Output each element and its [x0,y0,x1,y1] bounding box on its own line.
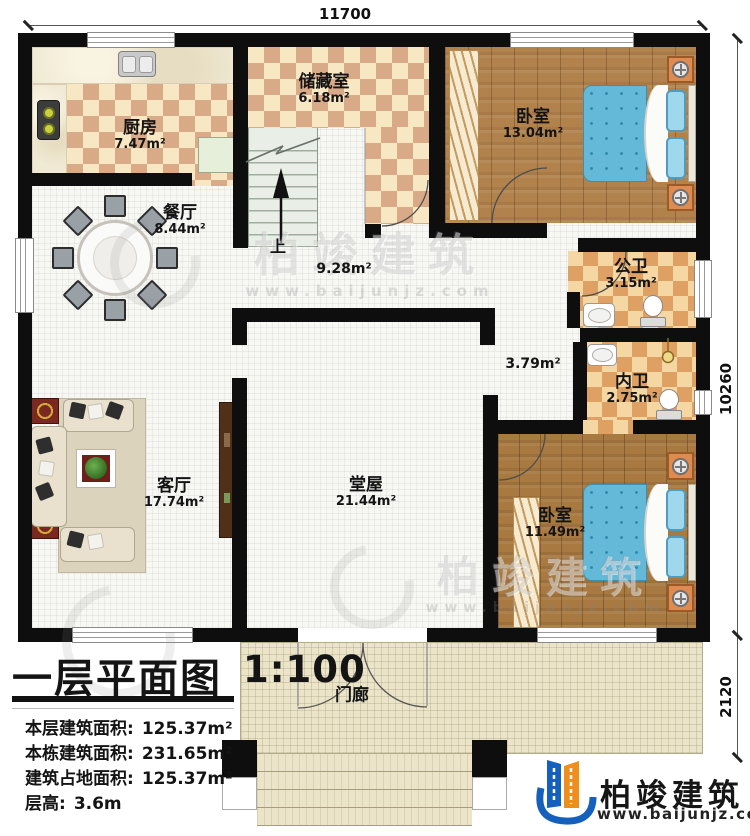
side-table-top [31,398,59,424]
title-underline [12,696,234,702]
watermark-company: 柏竣建筑 [437,544,653,605]
fridge [198,137,234,173]
lamp-icon [672,189,689,206]
wall-storage-bedroom1 [429,47,445,238]
floor-plan-canvas: 厨房 7.47m² 储藏室 6.18m² 餐厅 8.44m² 卧室 13.04m… [0,0,750,836]
window-bedroom2-bottom [537,627,657,643]
watermark-website: www.baijunjz.com [426,600,665,616]
room-area: 11.49m² [525,526,585,541]
lamp-icon [672,590,689,607]
bedroom1-wardrobe [449,50,479,221]
room-area: 6.18m² [298,92,349,107]
room-label-kitchen: 厨房 7.47m² [114,119,165,153]
window-innerbath-right [694,390,712,415]
wall-hall-top-cap-left [232,308,247,345]
porch-step-3 [257,790,472,808]
dining-chair [52,247,74,269]
toilet-tank [640,317,666,327]
bed1-pillow [666,137,686,179]
stat-value: 125.37m² [142,719,233,739]
plan-scale: 1:100 [243,648,366,691]
hallway-area-label: 9.28m² [316,261,371,277]
bedroom2-nightstand-bottom [667,584,694,612]
stove-burner-2 [43,123,55,135]
sofa-pillow [87,403,104,420]
corridor-area-label: 3.79m² [505,356,560,372]
stat-label: 本栋建筑面积: [25,744,134,764]
bed1-mattress [583,85,647,182]
room-name: 客厅 [144,477,204,496]
toilet-tank [656,410,682,420]
stove-icon [37,100,60,140]
lamp-icon [672,61,689,78]
porch-step-1 [257,754,472,772]
room-label-hall: 堂屋 21.44m² [336,476,396,510]
stat-value: 125.37m² [142,769,233,789]
dimension-line-right [737,38,738,757]
stat-floor-height: 层高:3.6m [25,789,122,814]
bed2-headboard [688,484,696,581]
room-name: 厨房 [114,119,165,138]
room-name: 公卫 [605,258,656,277]
kitchen-sink-basin-right [139,56,153,73]
bedroom1-nightstand-top [667,56,694,83]
tv-item [224,493,230,503]
room-name: 储藏室 [298,73,349,92]
room-label-bedroom2: 卧室 11.49m² [525,507,585,541]
wall-kitchen-stairs [233,47,248,248]
sofa-pillow [69,402,87,420]
watermark-website: www.baijunjz.com [245,282,494,300]
window-publicbath-right [694,260,712,318]
window-dining-left [15,238,34,313]
porch-pillar-right [472,740,507,777]
room-name: 内卫 [606,373,657,392]
public-bath-toilet [640,295,666,328]
bed2-pillow [666,489,686,531]
inner-bath-threshold [583,420,633,434]
stat-building-area: 本栋建筑面积:231.65m² [25,739,233,764]
dimension-porch: 2120 [717,672,735,722]
sink-basin [588,308,611,323]
tv-cabinet [219,402,233,538]
stat-footprint-area: 建筑占地面积:125.37m² [25,764,233,789]
porch-step-2 [257,772,472,790]
wall-publicbath-top [578,238,710,252]
room-area: 2.75m² [606,392,657,407]
window-kitchen-top [87,32,175,48]
bedroom2-nightstand-top [667,452,694,480]
wall-bottom-3 [427,628,537,642]
stat-value: 231.65m² [142,744,233,764]
room-label-dining: 餐厅 8.44m² [154,204,205,238]
inner-bath-sink [587,344,617,366]
room-area: 3.15m² [605,277,656,292]
stat-floor-area: 本层建筑面积:125.37m² [25,714,233,739]
bedroom1-nightstand-bottom [667,184,694,211]
dimension-right: 10260 [717,359,735,419]
kitchen-sink [118,51,156,77]
wall-kitchen-bottom [32,173,192,186]
stove-burner-1 [43,107,55,119]
wall-hall-left [232,378,247,642]
tv-item [224,433,230,447]
sofa-pillow [38,460,55,477]
company-logo-icon [533,752,597,826]
dimension-top: 11700 [305,5,385,23]
lamp-icon [672,458,689,475]
wall-innerbath-left [573,342,587,420]
dining-chair [104,195,126,217]
room-label-living: 客厅 17.74m² [144,477,204,511]
room-name: 餐厅 [154,204,205,223]
window-bedroom1-top [510,32,634,48]
porch-step-4 [257,808,472,826]
room-area: 17.74m² [144,496,204,511]
bed1-pillow [666,90,686,132]
wall-publicbath-left [567,292,580,328]
stat-label: 本层建筑面积: [25,719,134,739]
wall-hall-top [232,308,495,322]
room-label-storage: 储藏室 6.18m² [298,73,349,107]
wall-bedroom2-top-1 [498,420,583,434]
wall-hall-top-cap-right [480,308,495,345]
toilet-bowl [643,295,663,317]
kitchen-sink-basin-left [122,56,136,73]
dimension-line-top [28,25,702,26]
room-area: 7.47m² [114,138,165,153]
room-label-bedroom1: 卧室 13.04m² [503,108,563,142]
sink-basin [592,348,613,362]
room-label-public-bath: 公卫 3.15m² [605,258,656,292]
wall-bedroom2-top-2 [633,420,710,434]
porch-pillar-base-right [472,777,507,810]
coffee-table [76,449,116,488]
room-area: 8.44m² [154,223,205,238]
room-name: 堂屋 [336,476,396,495]
bed1-headboard [688,85,696,182]
wall-left [18,33,32,642]
public-bath-sink [583,303,615,327]
bed2-pillow [666,536,686,578]
room-label-inner-bath: 内卫 2.75m² [606,373,657,407]
room-area: 13.04m² [503,127,563,142]
inner-bath-toilet [656,389,682,420]
room-name: 卧室 [503,108,563,127]
room-name: 卧室 [525,507,585,526]
sofa-pillow [87,533,104,550]
wall-bottom-4 [657,628,710,642]
stat-label: 层高: [25,794,66,814]
storage-floor-right [365,127,430,224]
company-website: www.baijunjz.com [597,805,750,823]
plant-icon [85,457,107,479]
dining-chair [104,299,126,321]
room-area: 21.44m² [336,495,396,510]
stat-value: 3.6m [74,794,122,814]
stairs-up-label: 上 [270,233,286,257]
stat-label: 建筑占地面积: [25,769,134,789]
bed1-blanket [644,85,668,182]
wall-bath-divider [580,328,710,342]
title-divider [12,708,234,709]
toilet-bowl [659,389,679,410]
